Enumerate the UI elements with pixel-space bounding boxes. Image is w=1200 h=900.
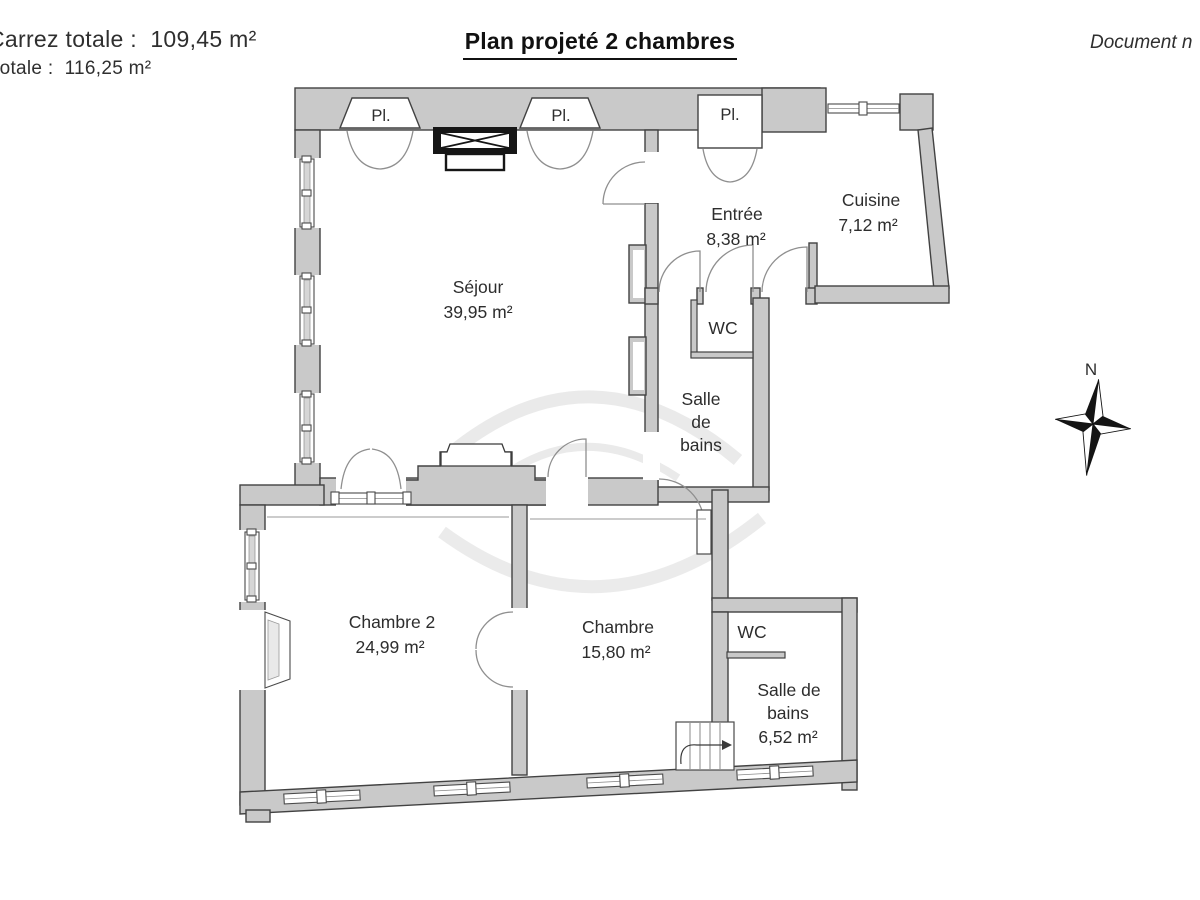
wall-bottom-step — [246, 810, 270, 822]
room-sdb-bottom: Salle de bains 6,52 m² — [757, 680, 820, 747]
room-sdb-bot-area: 6,52 m² — [758, 727, 817, 747]
wall-stub-a — [645, 288, 658, 304]
room-entree: Entrée 8,38 m² — [706, 204, 765, 249]
room-chambre: Chambre 15,80 m² — [581, 617, 654, 662]
room-sdb-top-l2: de — [691, 412, 710, 432]
wall-wctop-left — [691, 300, 697, 357]
room-chambre-name: Chambre — [582, 617, 654, 637]
room-chambre-area: 15,80 m² — [581, 642, 650, 662]
window-chambre2 — [245, 529, 259, 602]
door-hall-leaf — [697, 510, 711, 554]
room-sdb-top-l3: bains — [680, 435, 722, 455]
wall-sdbtop-right — [753, 298, 769, 490]
room-entree-name: Entrée — [711, 204, 763, 224]
closet-pl3-label: Pl. — [720, 106, 739, 124]
floor-plan: Pl. Pl. Pl. — [0, 0, 1200, 900]
window-sejour-2 — [300, 273, 314, 346]
room-chambre2: Chambre 2 24,99 m² — [349, 612, 436, 657]
closet-pl1-label: Pl. — [371, 107, 390, 125]
closet-pl2-label: Pl. — [551, 107, 570, 125]
room-entree-area: 8,38 m² — [706, 229, 765, 249]
wall-cuisine-slant — [918, 128, 949, 290]
wall-lowerleft-top — [240, 485, 324, 505]
wall-sdbtop-bottom — [645, 487, 769, 502]
room-wc-bottom-label: WC — [737, 622, 766, 642]
window-bay-chambre2 — [265, 612, 290, 688]
compass-rose: N — [1049, 360, 1136, 480]
wall-pl3-right — [762, 88, 826, 132]
threshold-sejour-chambre2 — [331, 492, 411, 504]
room-chambre2-name: Chambre 2 — [349, 612, 436, 632]
room-sdb-bot-l1: Salle de — [757, 680, 820, 700]
wall-hall-right — [712, 490, 728, 600]
room-cuisine-name: Cuisine — [842, 190, 900, 210]
fireplace-mantel — [441, 444, 511, 466]
window-sejour-1 — [300, 156, 314, 229]
room-sejour: Séjour 39,95 m² — [443, 277, 512, 322]
wall-cuisine-corner — [900, 94, 933, 130]
staircase — [676, 722, 734, 770]
room-cuisine-area: 7,12 m² — [838, 215, 897, 235]
room-sejour-name: Séjour — [453, 277, 504, 297]
door-entree-sdb — [659, 251, 700, 292]
wall-cuisine-bottom — [815, 286, 949, 303]
wall-sejour-right-a — [645, 130, 658, 154]
door-chambres-2 — [476, 650, 513, 687]
interior-lines — [267, 517, 706, 519]
wall-wctop-bottom — [691, 352, 753, 358]
wall-wcbot-bottom — [727, 652, 785, 658]
window-sejour-3 — [300, 391, 314, 464]
door-pl3 — [703, 149, 757, 182]
door-pl1 — [347, 131, 413, 169]
room-sejour-area: 39,95 m² — [443, 302, 512, 322]
door-sejour-entree — [603, 162, 645, 204]
room-sdb-top-l1: Salle — [682, 389, 721, 409]
compass-north-label: N — [1085, 360, 1097, 379]
door-chambres-1 — [476, 612, 513, 649]
closets: Pl. Pl. Pl. — [340, 95, 762, 148]
window-cuisine-top — [828, 102, 899, 115]
room-wc-top-label: WC — [708, 318, 737, 338]
room-sdb-bot-l2: bains — [767, 703, 809, 723]
door-pl2 — [527, 131, 593, 169]
door-entree-wc — [706, 245, 753, 292]
room-cuisine: Cuisine 7,12 m² — [838, 190, 900, 235]
door-entree-cuisine — [762, 247, 807, 292]
room-chambre2-area: 24,99 m² — [355, 637, 424, 657]
wall-block-top — [712, 598, 857, 612]
fireplace-hearth — [446, 154, 504, 170]
